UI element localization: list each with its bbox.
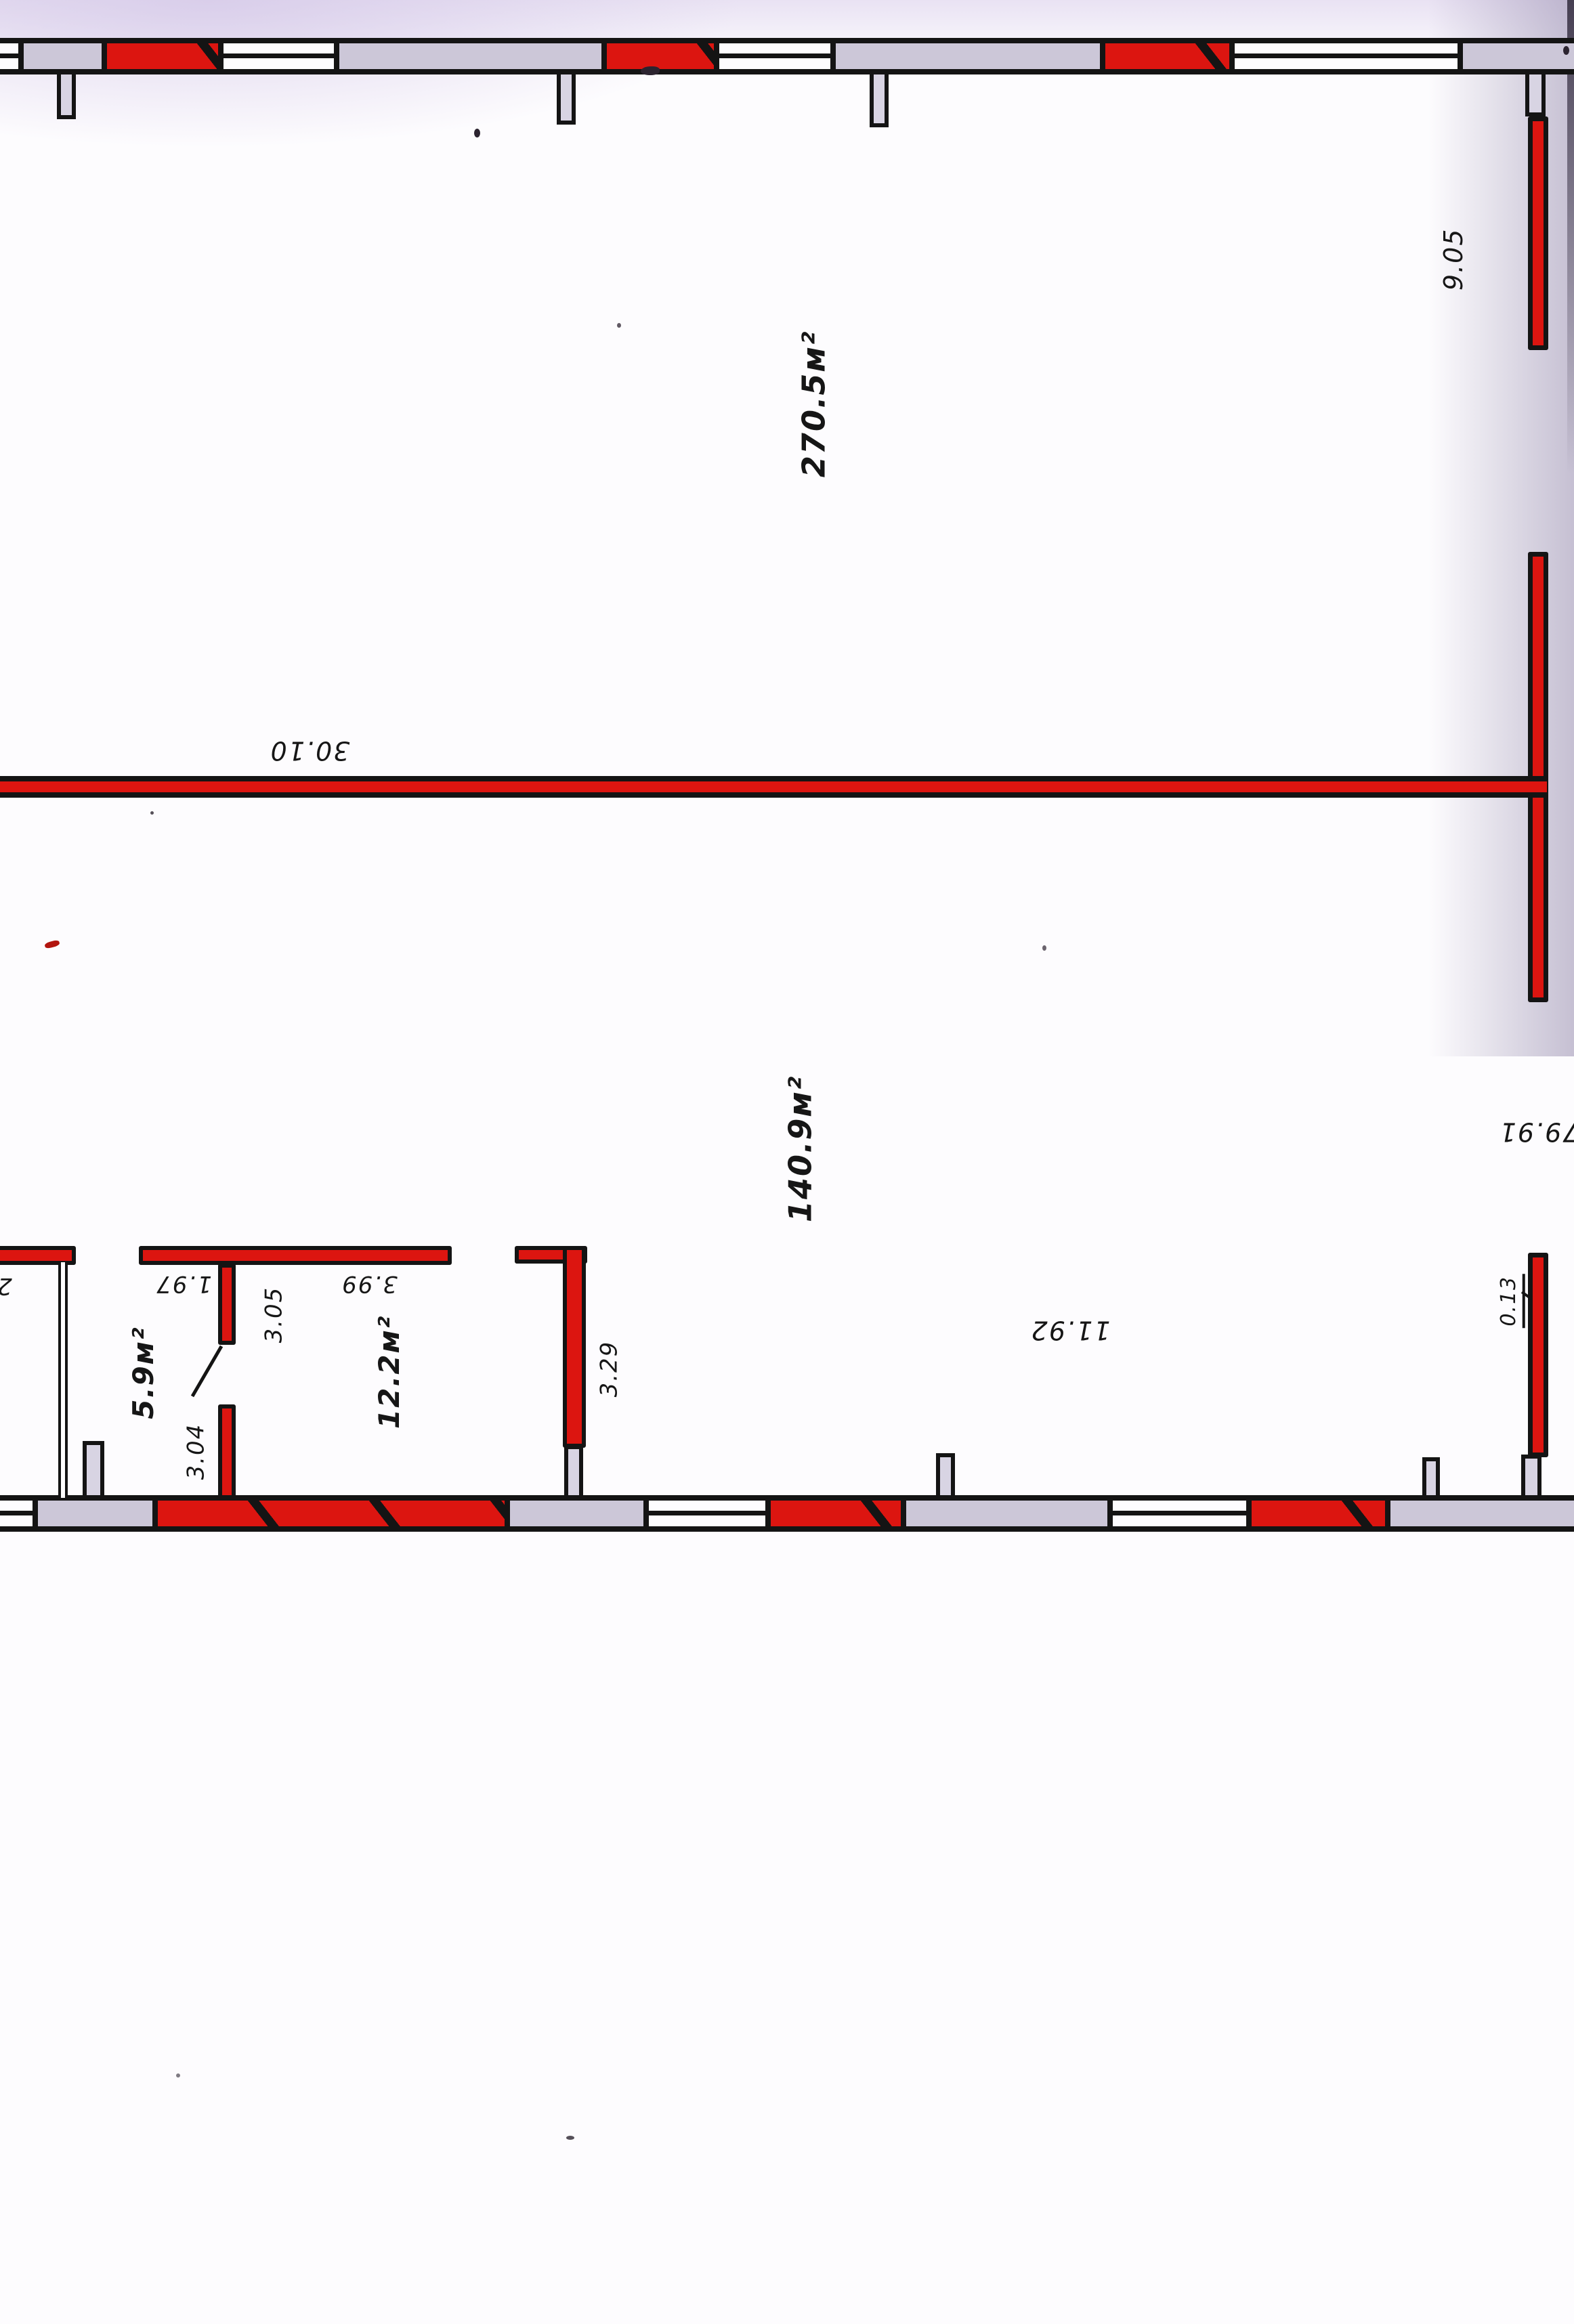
brick-hatched-segment <box>102 43 218 69</box>
dim-label-399: 3.99 <box>335 1270 403 1297</box>
pilaster <box>83 1441 104 1499</box>
scan-shadow-right <box>1428 0 1574 1056</box>
window-segment <box>643 1501 765 1526</box>
brick-hatched-segment <box>765 1501 901 1526</box>
brick-hatched-segment <box>1246 1501 1385 1526</box>
scan-speck <box>1042 945 1046 951</box>
dim-label-1192: 11.92 <box>1026 1315 1114 1345</box>
window-segment <box>1107 1501 1246 1526</box>
masonry-segment <box>1385 1501 1574 1526</box>
scan-speck <box>617 323 621 328</box>
masonry-segment <box>505 1501 643 1526</box>
masonry-segment <box>334 43 601 69</box>
scan-speck <box>566 2136 574 2140</box>
area-label-270: 270.5м² <box>796 329 832 478</box>
dim-label-013: 0.13 <box>1497 1274 1525 1328</box>
bottom-exterior-wall <box>0 1495 1574 1532</box>
dim-label-7991: 79.91 <box>1495 1117 1574 1146</box>
masonry-segment <box>33 1501 152 1526</box>
masonry-segment <box>18 43 102 69</box>
right-wall-segment-bottom <box>1528 1253 1548 1457</box>
pilaster <box>1521 1455 1541 1499</box>
area-label-59: 5.9м² <box>127 1318 160 1427</box>
floorplan-scan-page: 270.5м² 9.05 30.10 140.9м² 79.91 11.92 0… <box>0 0 1574 2324</box>
pilaster <box>564 1445 583 1499</box>
dim-label-305: 3.05 <box>261 1281 287 1349</box>
dim-label-304: 3.04 <box>183 1418 209 1486</box>
middle-cross-wall <box>0 776 1547 798</box>
scan-speck <box>150 811 154 815</box>
masonry-segment <box>901 1501 1107 1526</box>
partition-stub-upper <box>218 1264 236 1345</box>
dim-label-197: 1.97 <box>150 1270 217 1297</box>
interior-wall-gamma-leg <box>563 1246 586 1448</box>
masonry-segment <box>830 43 1100 69</box>
window-segment <box>0 43 18 69</box>
window-segment <box>0 1501 33 1526</box>
wall-core <box>0 781 1547 792</box>
pilaster <box>57 70 76 119</box>
top-exterior-wall <box>0 38 1574 74</box>
ink-blot <box>641 66 660 75</box>
pilaster <box>936 1453 955 1499</box>
scan-speck-red <box>44 939 60 949</box>
dim-label-329: 3.29 <box>596 1335 622 1403</box>
door-swing-line <box>192 1346 221 1396</box>
scan-speck <box>1563 46 1569 55</box>
window-segment <box>218 43 334 69</box>
right-wall-segment-top <box>1528 116 1548 350</box>
brick-hatched-segment <box>152 1501 505 1526</box>
area-label-1409: 140.9м² <box>783 1074 819 1223</box>
scan-speck <box>474 129 480 137</box>
pilaster <box>557 70 576 125</box>
light-partition <box>58 1262 68 1498</box>
window-segment <box>1229 43 1458 69</box>
interior-wall-horizontal-main <box>139 1246 452 1265</box>
area-label-122: 12.2м² <box>373 1320 406 1429</box>
dim-label-3010: 30.10 <box>265 735 354 765</box>
brick-hatched-segment <box>601 43 714 69</box>
dim-label-905: 9.05 <box>1439 222 1469 297</box>
scan-speck <box>176 2073 180 2078</box>
pilaster <box>870 70 889 127</box>
masonry-segment <box>1458 43 1574 69</box>
pilaster <box>1422 1457 1440 1499</box>
window-segment <box>714 43 830 69</box>
dim-label-edge-partial: 2 <box>0 1272 18 1299</box>
brick-hatched-segment <box>1100 43 1229 69</box>
scan-shadow-topleft <box>0 0 745 149</box>
partition-stub-lower <box>218 1404 236 1499</box>
pilaster <box>1525 70 1546 116</box>
